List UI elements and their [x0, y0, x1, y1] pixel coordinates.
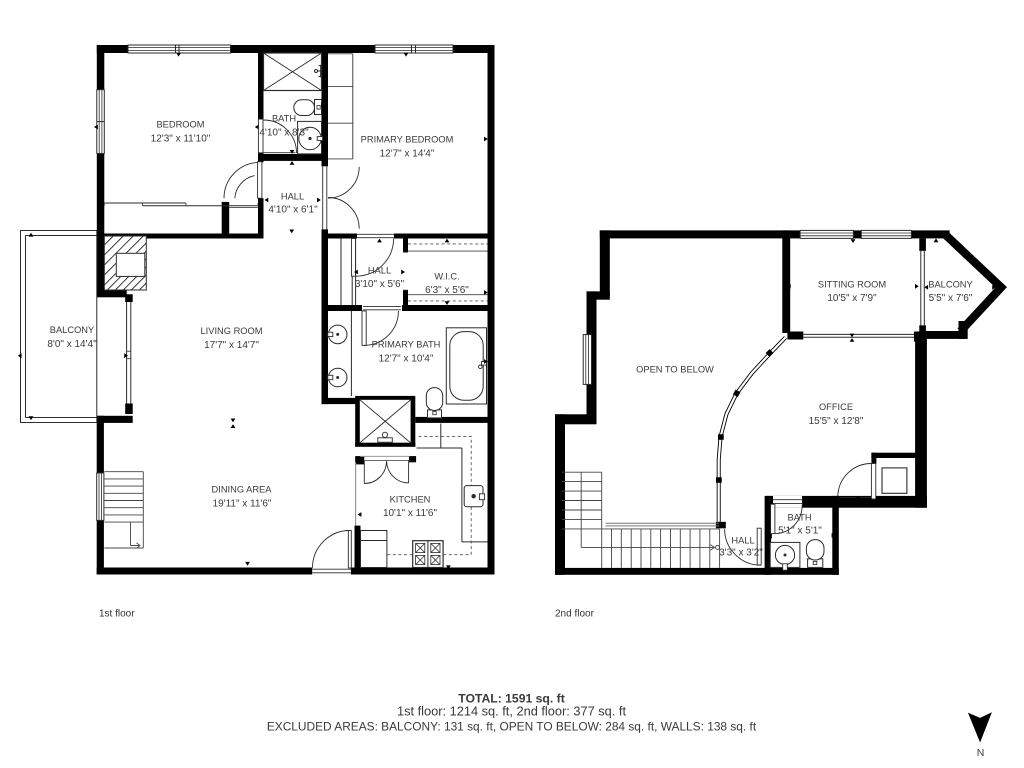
svg-text:PRIMARY BATH: PRIMARY BATH: [372, 340, 441, 350]
svg-text:2nd floor: 2nd floor: [555, 609, 595, 620]
svg-text:BALCONY: BALCONY: [50, 325, 94, 335]
svg-text:6'3" x 5'6": 6'3" x 5'6": [425, 285, 469, 296]
svg-text:BATH: BATH: [272, 114, 296, 124]
svg-text:19'11" x 11'6": 19'11" x 11'6": [213, 499, 272, 510]
svg-text:10'1" x 11'6": 10'1" x 11'6": [383, 508, 438, 519]
svg-text:3'10" x 5'6": 3'10" x 5'6": [355, 279, 405, 290]
svg-text:12'3" x 11'10": 12'3" x 11'10": [151, 134, 211, 145]
svg-text:SITTING ROOM: SITTING ROOM: [818, 280, 886, 290]
svg-text:LIVING ROOM: LIVING ROOM: [201, 326, 263, 336]
svg-text:5'1" x 5'1": 5'1" x 5'1": [778, 526, 822, 537]
svg-text:OPEN TO BELOW: OPEN TO BELOW: [636, 365, 714, 375]
svg-text:HALL: HALL: [281, 192, 304, 202]
svg-text:DINING AREA: DINING AREA: [212, 485, 273, 495]
svg-text:3'3" x 3'2": 3'3" x 3'2": [719, 548, 763, 559]
svg-text:PRIMARY BEDROOM: PRIMARY BEDROOM: [361, 135, 454, 145]
svg-text:10'5" x 7'9": 10'5" x 7'9": [827, 293, 877, 304]
svg-text:1st floor: 1214 sq. ft, 2nd fl: 1st floor: 1214 sq. ft, 2nd floor: 377 s…: [397, 704, 627, 719]
svg-text:BEDROOM: BEDROOM: [156, 120, 204, 130]
svg-text:KITCHEN: KITCHEN: [390, 495, 431, 505]
svg-text:4'10" x 8'3": 4'10" x 8'3": [259, 128, 309, 139]
svg-text:HALL: HALL: [368, 266, 391, 276]
svg-text:HALL: HALL: [731, 536, 754, 546]
svg-text:15'5" x 12'8": 15'5" x 12'8": [809, 416, 864, 427]
svg-text:OFFICE: OFFICE: [819, 402, 853, 412]
svg-text:1st floor: 1st floor: [99, 609, 135, 620]
svg-text:17'7" x 14'7": 17'7" x 14'7": [204, 340, 259, 351]
svg-text:12'7" x 10'4": 12'7" x 10'4": [379, 354, 434, 365]
svg-text:4'10" x 6'1": 4'10" x 6'1": [268, 205, 318, 216]
svg-text:N: N: [977, 747, 985, 759]
svg-text:EXCLUDED AREAS: BALCONY: 131 s: EXCLUDED AREAS: BALCONY: 131 sq. ft, OPE…: [267, 720, 757, 734]
svg-text:BALCONY: BALCONY: [928, 280, 972, 290]
svg-text:12'7" x 14'4": 12'7" x 14'4": [380, 149, 435, 160]
svg-text:BATH: BATH: [787, 513, 811, 523]
svg-text:W.I.C.: W.I.C.: [434, 272, 459, 282]
svg-text:5'5" x 7'6": 5'5" x 7'6": [929, 293, 973, 304]
svg-text:8'0" x 14'4": 8'0" x 14'4": [47, 339, 97, 350]
